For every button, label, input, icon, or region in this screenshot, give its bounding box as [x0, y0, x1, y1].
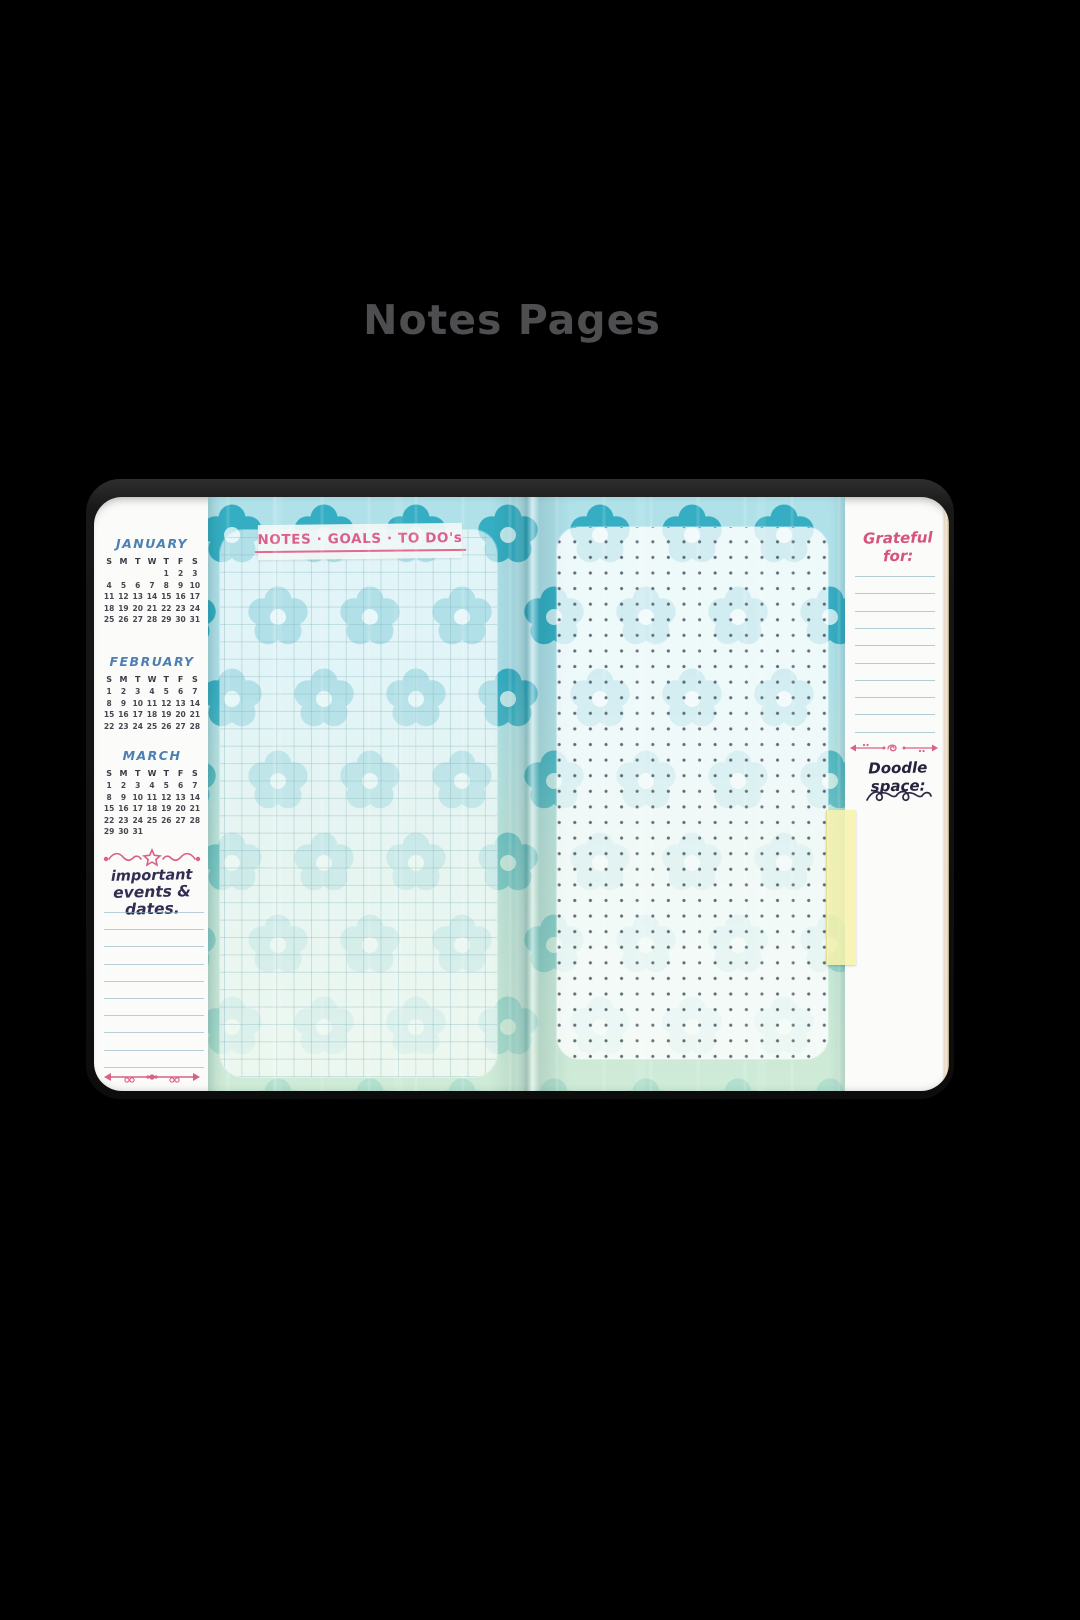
calendar-day: 26	[116, 614, 130, 626]
calendar-day: 13	[173, 792, 187, 804]
ruled-line	[855, 663, 935, 664]
calendar-day	[145, 568, 159, 580]
ruled-line	[104, 964, 204, 965]
calendar-day: 22	[159, 603, 173, 615]
calendar-day: 25	[145, 815, 159, 827]
calendar-month-title: FEBRUARY	[102, 655, 202, 669]
ruled-line	[104, 981, 204, 982]
calendar-day: 21	[145, 603, 159, 615]
calendar-day: 17	[131, 709, 145, 721]
ruled-line	[855, 680, 935, 681]
calendar-day: 8	[102, 698, 116, 710]
calendar-day-header: T	[159, 768, 173, 780]
calendar-day-header: M	[116, 556, 130, 568]
calendar-day: 6	[131, 580, 145, 592]
grateful-for-heading: Grateful for:	[850, 528, 947, 566]
calendar-day: 24	[188, 603, 202, 615]
calendar-day-header: S	[102, 768, 116, 780]
calendar-day-header: F	[173, 768, 187, 780]
ruled-line	[104, 1015, 204, 1016]
calendar-day: 5	[116, 580, 130, 592]
ruled-line	[855, 593, 935, 594]
calendar-day: 4	[145, 686, 159, 698]
calendar-day: 26	[159, 815, 173, 827]
calendar-day: 13	[131, 591, 145, 603]
calendar-day: 9	[116, 698, 130, 710]
calendar-day: 12	[116, 591, 130, 603]
calendar-day: 21	[188, 709, 202, 721]
calendar-day: 31	[131, 826, 145, 838]
calendar-day	[173, 826, 187, 838]
ruled-line	[104, 929, 204, 930]
calendar-day-header: T	[131, 768, 145, 780]
calendar-day: 12	[159, 698, 173, 710]
calendar-day-header: W	[145, 556, 159, 568]
calendar-day: 28	[188, 815, 202, 827]
ruled-line	[104, 1067, 204, 1068]
notes-goals-todos-text: NOTES · GOALS · TO DO's	[254, 530, 465, 553]
calendar-month-title: MARCH	[102, 749, 202, 763]
calendar-day: 16	[173, 591, 187, 603]
calendar-day	[116, 568, 130, 580]
ruled-line	[104, 1032, 204, 1033]
calendar-day: 7	[188, 780, 202, 792]
calendar-day: 22	[102, 815, 116, 827]
calendar-day: 15	[102, 803, 116, 815]
calendar-day	[159, 826, 173, 838]
calendar-day: 2	[173, 568, 187, 580]
calendar-day: 10	[188, 580, 202, 592]
calendar-day	[102, 568, 116, 580]
spiral-divider	[848, 740, 940, 756]
calendar-day-header: S	[188, 768, 202, 780]
calendar-day: 27	[131, 614, 145, 626]
calendar-day: 14	[145, 591, 159, 603]
calendar-day-header: T	[159, 556, 173, 568]
calendar-day: 24	[131, 721, 145, 733]
calendar-day: 3	[188, 568, 202, 580]
calendar-day-header: F	[173, 556, 187, 568]
calendar-day: 6	[173, 780, 187, 792]
calendar-day: 23	[116, 721, 130, 733]
calendar-day: 16	[116, 709, 130, 721]
ruled-line	[855, 697, 935, 698]
calendar-day: 23	[116, 815, 130, 827]
calendar-day: 11	[145, 698, 159, 710]
calendar-day: 15	[159, 591, 173, 603]
ruled-line	[855, 611, 935, 612]
calendar-day: 27	[173, 815, 187, 827]
calendar-day	[145, 826, 159, 838]
calendar-day-header: S	[188, 674, 202, 686]
important-events-heading: important events & dates.	[95, 867, 208, 919]
calendar-day: 19	[159, 803, 173, 815]
calendar-day: 1	[102, 686, 116, 698]
arrow-dots-divider	[102, 1070, 202, 1084]
calendar-day	[131, 568, 145, 580]
notes-goals-todos-label: NOTES · GOALS · TO DO's	[258, 523, 462, 560]
calendar-day: 10	[131, 698, 145, 710]
ruled-line	[855, 576, 935, 577]
calendar-day-header: S	[102, 556, 116, 568]
calendar-day: 17	[131, 803, 145, 815]
doodle-loops-squiggle	[864, 784, 934, 808]
calendar-day: 18	[102, 603, 116, 615]
ruled-line	[104, 1050, 204, 1051]
calendar-day: 28	[188, 721, 202, 733]
calendar-day: 20	[131, 603, 145, 615]
planner-spread: NOTES · GOALS · TO DO's JANUARYSMTWTFS12…	[94, 497, 949, 1091]
calendar-day: 2	[116, 686, 130, 698]
calendar-day: 14	[188, 698, 202, 710]
calendar-day: 3	[131, 686, 145, 698]
page-title: Notes Pages	[0, 296, 1024, 344]
ruled-line	[104, 946, 204, 947]
calendar-day: 7	[145, 580, 159, 592]
calendar-day: 12	[159, 792, 173, 804]
calendar-day: 31	[188, 614, 202, 626]
yellow-sticky-tab	[826, 810, 856, 965]
dot-grid-sheet	[557, 527, 828, 1059]
calendar-day-header: T	[131, 674, 145, 686]
calendar-grid: SMTWTFS123456789101112131415161718192021…	[102, 674, 202, 732]
calendar-grid: SMTWTFS123456789101112131415161718192021…	[102, 768, 202, 838]
calendar-day: 16	[116, 803, 130, 815]
calendar-grid: SMTWTFS123456789101112131415161718192021…	[102, 556, 202, 626]
calendar-day: 13	[173, 698, 187, 710]
mini-calendar-march: MARCHSMTWTFS1234567891011121314151617181…	[102, 749, 202, 838]
calendar-day: 22	[102, 721, 116, 733]
calendar-day-header: S	[102, 674, 116, 686]
page-stack-edge	[942, 505, 949, 1083]
calendar-day: 6	[173, 686, 187, 698]
grid-notes-sheet	[220, 530, 497, 1077]
calendar-day-header: W	[145, 674, 159, 686]
calendar-day: 9	[116, 792, 130, 804]
calendar-day: 20	[173, 803, 187, 815]
calendar-day: 20	[173, 709, 187, 721]
calendar-day: 17	[188, 591, 202, 603]
squiggle-star-divider	[102, 846, 202, 868]
calendar-day: 26	[159, 721, 173, 733]
ruled-line	[855, 714, 935, 715]
calendar-day: 11	[102, 591, 116, 603]
calendar-day-header: F	[173, 674, 187, 686]
calendar-day: 5	[159, 780, 173, 792]
calendar-month-title: JANUARY	[102, 537, 202, 551]
mini-calendar-february: FEBRUARYSMTWTFS1234567891011121314151617…	[102, 655, 202, 732]
calendar-day: 18	[145, 803, 159, 815]
calendar-day: 19	[159, 709, 173, 721]
calendar-day-header: T	[159, 674, 173, 686]
calendar-day: 21	[188, 803, 202, 815]
mini-calendar-january: JANUARYSMTWTFS12345678910111213141516171…	[102, 537, 202, 626]
calendar-day	[188, 826, 202, 838]
calendar-day: 25	[145, 721, 159, 733]
important-events-line2: events & dates.	[96, 883, 209, 919]
calendar-day: 28	[145, 614, 159, 626]
calendar-day-header: W	[145, 768, 159, 780]
calendar-day: 30	[173, 614, 187, 626]
calendar-day: 10	[131, 792, 145, 804]
calendar-day: 7	[188, 686, 202, 698]
calendar-day: 1	[159, 568, 173, 580]
calendar-day: 4	[145, 780, 159, 792]
calendar-day: 2	[116, 780, 130, 792]
ruled-line	[104, 998, 204, 999]
ruled-line	[855, 645, 935, 646]
ruled-line	[855, 732, 935, 733]
calendar-day: 3	[131, 780, 145, 792]
calendar-day-header: M	[116, 674, 130, 686]
calendar-day: 5	[159, 686, 173, 698]
calendar-day: 25	[102, 614, 116, 626]
calendar-day-header: M	[116, 768, 130, 780]
calendar-day: 8	[159, 580, 173, 592]
calendar-day: 29	[159, 614, 173, 626]
calendar-day: 30	[116, 826, 130, 838]
calendar-day-header: T	[131, 556, 145, 568]
calendar-day: 8	[102, 792, 116, 804]
calendar-day: 11	[145, 792, 159, 804]
calendar-day: 9	[173, 580, 187, 592]
calendar-day: 15	[102, 709, 116, 721]
calendar-day: 18	[145, 709, 159, 721]
calendar-day: 4	[102, 580, 116, 592]
calendar-day: 27	[173, 721, 187, 733]
calendar-day-header: S	[188, 556, 202, 568]
calendar-day: 23	[173, 603, 187, 615]
calendar-day: 14	[188, 792, 202, 804]
calendar-day: 24	[131, 815, 145, 827]
calendar-day: 19	[116, 603, 130, 615]
ruled-line	[855, 628, 935, 629]
calendar-day: 1	[102, 780, 116, 792]
calendar-day: 29	[102, 826, 116, 838]
product-photo-canvas: Notes Pages	[0, 0, 1080, 1620]
